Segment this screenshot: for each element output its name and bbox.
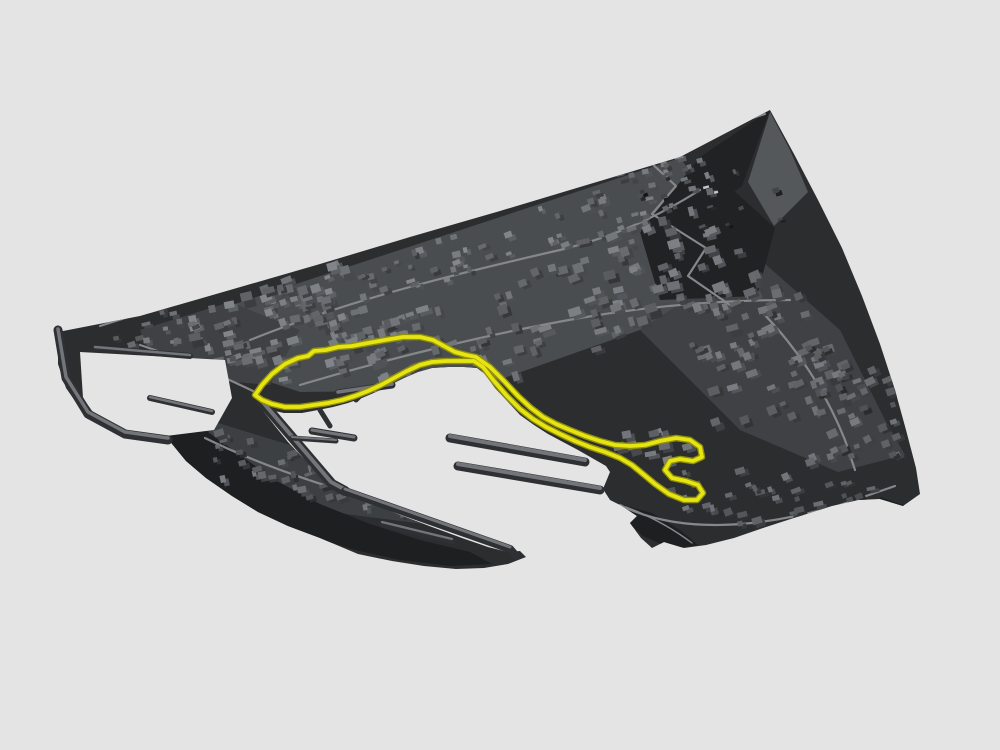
- monaco-3d-map: [0, 0, 1000, 750]
